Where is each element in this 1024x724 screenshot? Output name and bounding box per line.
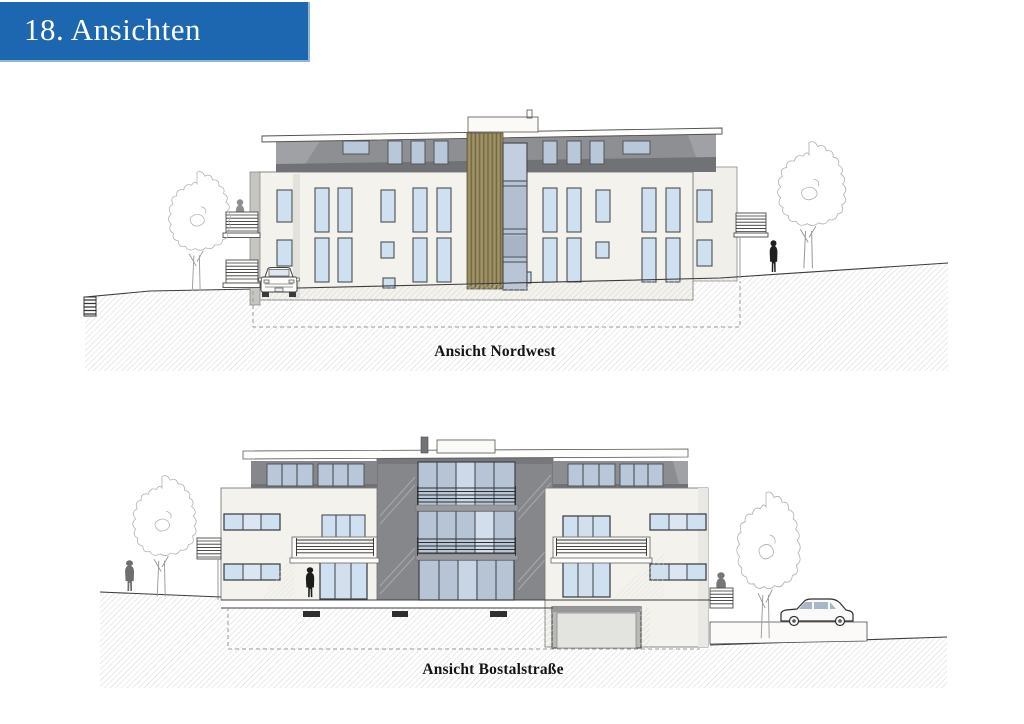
person-right-icon	[770, 240, 778, 272]
upper-glass-door	[322, 515, 365, 538]
parking-plateau	[710, 622, 867, 644]
retaining-wall-end	[84, 297, 96, 316]
garage-door	[552, 607, 641, 648]
roof-chimney	[421, 437, 428, 453]
centre-section	[377, 456, 553, 600]
person-left-icon	[125, 560, 134, 591]
tree-left-icon	[133, 476, 196, 597]
brochure-page: 18. Ansichten	[0, 0, 1024, 724]
outer-balcony-right	[710, 588, 733, 608]
stair-glazing	[503, 143, 527, 290]
tree-left-icon	[169, 172, 231, 291]
header-banner: 18. Ansichten	[0, 2, 310, 62]
roof-top-box	[437, 440, 495, 453]
building-nordwest	[258, 110, 737, 300]
tree-right-icon	[778, 142, 846, 269]
caption-nordwest: Ansicht Nordwest	[375, 343, 615, 361]
centre-glazing	[418, 462, 515, 600]
page-title: 18. Ansichten	[0, 2, 308, 58]
caption-bostalstrasse: Ansicht Bostalstraße	[373, 661, 613, 679]
elevation-nordwest	[80, 85, 960, 377]
wood-slat-panel	[467, 133, 503, 289]
outer-balcony-left	[197, 538, 221, 600]
roof-top-box	[468, 117, 538, 132]
car-side-icon	[781, 599, 853, 626]
elevation-bostalstrasse	[95, 395, 950, 695]
